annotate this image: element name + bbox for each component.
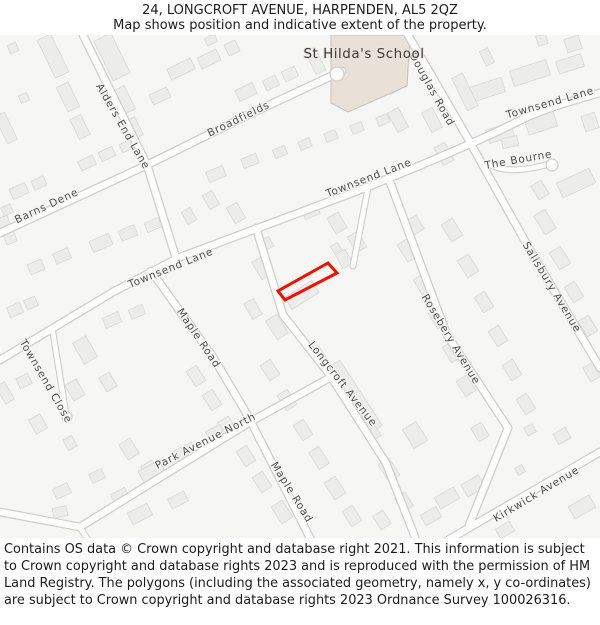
page-subtitle: Map shows position and indicative extent… (0, 18, 600, 33)
map-viewport: Alders End LaneBroadfieldsBarns DeneDoug… (0, 35, 600, 538)
school-label: St Hilda's School (303, 46, 424, 62)
page-title: 24, LONGCROFT AVENUE, HARPENDEN, AL5 2QZ (0, 0, 600, 18)
property-map: Alders End LaneBroadfieldsBarns DeneDoug… (0, 35, 600, 538)
cul-de-sac-end (330, 67, 344, 81)
copyright-footer: Contains OS data © Crown copyright and d… (0, 538, 600, 609)
header: 24, LONGCROFT AVENUE, HARPENDEN, AL5 2QZ… (0, 0, 600, 35)
